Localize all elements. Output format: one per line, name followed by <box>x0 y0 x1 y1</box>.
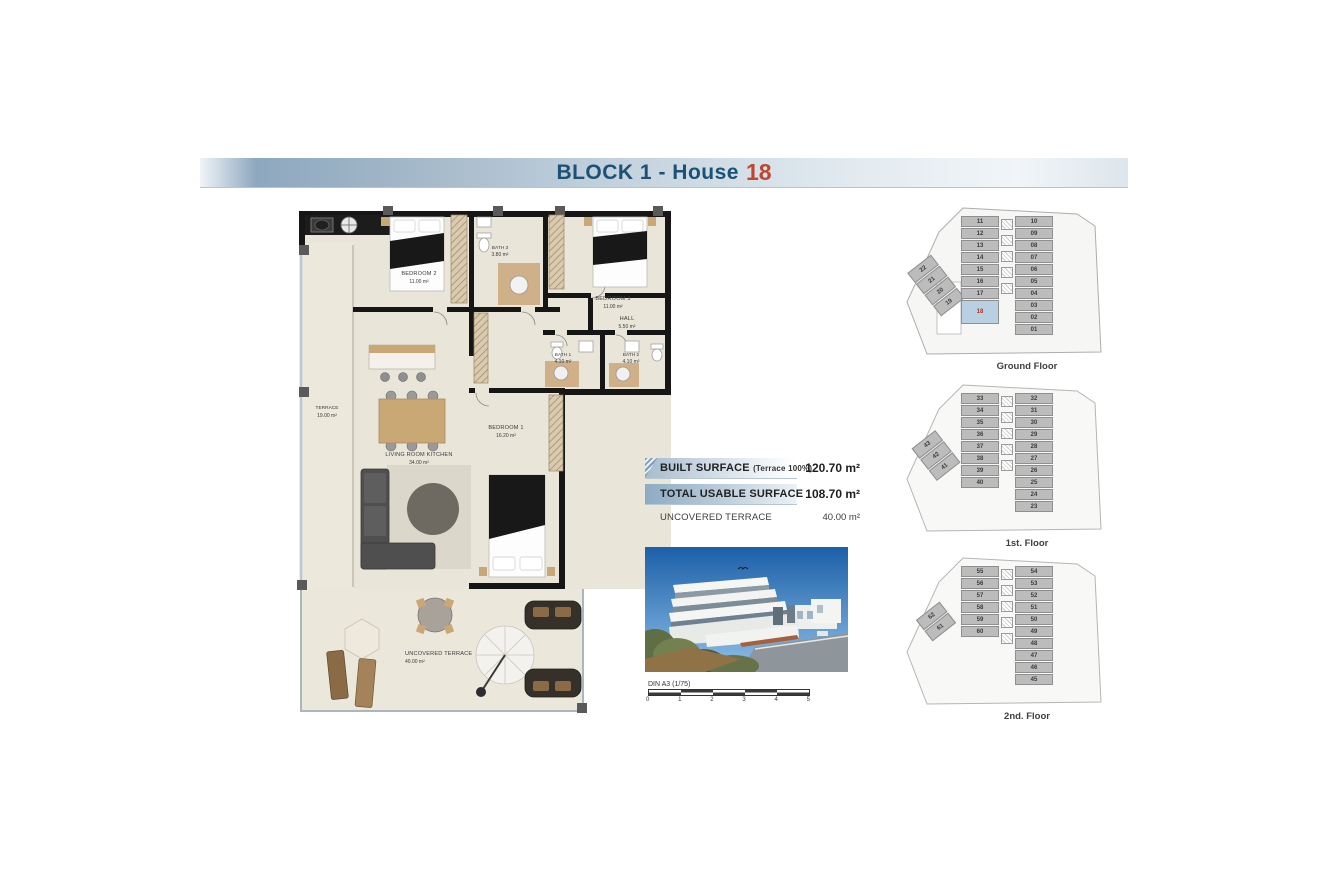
usable-surface-value: 108.70 m² <box>805 484 860 504</box>
unit-cell: 60 <box>961 626 999 637</box>
unit-cell: 01 <box>1015 324 1053 335</box>
right-units: 10090807060504030201 <box>1015 216 1053 335</box>
miniplan-first-floor: 434241 3334353637383940 3231302928272625… <box>905 383 1105 551</box>
unit-cell: 03 <box>1015 300 1053 311</box>
room-label-bedroom2: BEDROOM 2 <box>401 271 436 277</box>
living-area <box>361 465 471 569</box>
unit-cell: 57 <box>961 590 999 601</box>
unit-cell: 09 <box>1015 228 1053 239</box>
room-area-bath3: 3.80 m² <box>492 252 509 258</box>
scale-segments <box>648 689 810 696</box>
room-label-bath1: BATH 1 <box>555 352 572 358</box>
floor-label-ground: Ground Floor <box>949 361 1105 372</box>
unit-cell: 32 <box>1015 393 1053 404</box>
scale-tick: 1 <box>678 697 681 703</box>
unit-cell: 36 <box>961 429 999 440</box>
scale-bar: DIN A3 (1/75) 012345 <box>648 681 826 703</box>
unit-cell: 14 <box>961 252 999 263</box>
apartment-floor-plan: BEDROOM 2 11.00 m² BATH 3 3.80 m² BEDROO… <box>293 203 683 723</box>
unit-cell: 26 <box>1015 465 1053 476</box>
miniplan-second-floor: 6261 555657585960 54535251504948474645 2… <box>905 556 1105 724</box>
unit-cell: 45 <box>1015 674 1053 685</box>
unit-cell: 18 <box>961 300 999 324</box>
stool-icon <box>399 373 408 382</box>
room-area-bedroom2: 11.00 m² <box>409 279 429 285</box>
left-units: 555657585960 <box>961 566 999 685</box>
unit-cell: 08 <box>1015 240 1053 251</box>
room-area-hall: 5.50 m² <box>619 324 636 330</box>
uncovered-terrace-value: 40.00 m² <box>823 510 861 526</box>
usable-surface-row: TOTAL USABLE SURFACE 108.70 m² <box>645 484 860 504</box>
room-area-terrace: 19.00 m² <box>317 413 337 419</box>
stair-core <box>999 566 1015 685</box>
bed-bedroom1 <box>479 475 555 577</box>
room-area-bedroom1: 16.20 m² <box>496 433 516 439</box>
unit-cell: 02 <box>1015 312 1053 323</box>
scale-tick: 5 <box>807 697 810 703</box>
unit-cell: 05 <box>1015 276 1053 287</box>
scale-label: DIN A3 (1/75) <box>648 681 826 688</box>
unit-cell: 34 <box>961 405 999 416</box>
unit-cell: 40 <box>961 477 999 488</box>
unit-cell: 31 <box>1015 405 1053 416</box>
surface-table: BUILT SURFACE (Terrace 100%) 120.70 m² T… <box>645 458 860 532</box>
unit-cell: 24 <box>1015 489 1053 500</box>
unit-cell: 48 <box>1015 638 1053 649</box>
room-label-bedroom1: BEDROOM 1 <box>488 425 523 431</box>
scale-tick: 2 <box>710 697 713 703</box>
stool-icon <box>417 373 426 382</box>
brochure-page: BLOCK 1 - House 18 <box>0 0 1320 895</box>
room-area-living: 34.00 m² <box>409 460 429 466</box>
unit-cell: 59 <box>961 614 999 625</box>
left-units: 1112131415161718 <box>961 216 999 335</box>
room-label-bath3: BATH 3 <box>492 245 509 251</box>
miniplan-ground-floor: 22212019 1112131415161718 10090807060504… <box>905 206 1105 374</box>
room-label-living: LIVING ROOM KITCHEN <box>385 452 452 458</box>
unit-cell: 37 <box>961 441 999 452</box>
floor-label-second: 2nd. Floor <box>949 711 1105 722</box>
unit-cell: 35 <box>961 417 999 428</box>
right-units: 32313029282726252423 <box>1015 393 1053 512</box>
left-units: 3334353637383940 <box>961 393 999 512</box>
floor-label-first: 1st. Floor <box>949 538 1105 549</box>
unit-cell: 46 <box>1015 662 1053 673</box>
round-rug <box>407 483 459 535</box>
uncovered-terrace-label: UNCOVERED TERRACE <box>660 510 772 526</box>
unit-cell: 49 <box>1015 626 1053 637</box>
house-number: 18 <box>746 159 772 186</box>
unit-cell: 10 <box>1015 216 1053 227</box>
uncovered-terrace-row: UNCOVERED TERRACE 40.00 m² <box>645 510 860 526</box>
unit-cell: 53 <box>1015 578 1053 589</box>
unit-cell: 39 <box>961 465 999 476</box>
unit-cell: 29 <box>1015 429 1053 440</box>
room-label-hall: HALL <box>620 316 635 322</box>
unit-cell: 23 <box>1015 501 1053 512</box>
stair-core <box>999 216 1015 335</box>
page-title: BLOCK 1 - House <box>556 161 739 185</box>
unit-cell: 15 <box>961 264 999 275</box>
scale-tick: 0 <box>646 697 649 703</box>
scale-ticks: 012345 <box>646 697 810 703</box>
main-block: 3334353637383940 32313029282726252423 <box>961 393 1053 512</box>
unit-cell: 16 <box>961 276 999 287</box>
built-surface-label: BUILT SURFACE <box>660 462 750 474</box>
stair-core <box>999 393 1015 512</box>
right-units: 54535251504948474645 <box>1015 566 1053 685</box>
room-label-bedroom3: BEDROOM 3 <box>595 296 630 302</box>
room-label-terrace: TERRACE <box>316 405 339 411</box>
unit-cell: 13 <box>961 240 999 251</box>
room-area-bedroom3: 11.00 m² <box>603 304 623 310</box>
unit-cell: 12 <box>961 228 999 239</box>
built-surface-value: 120.70 m² <box>805 458 860 478</box>
sofa-chaise <box>361 543 435 569</box>
main-block: 1112131415161718 10090807060504030201 <box>961 216 1053 335</box>
unit-cell: 04 <box>1015 288 1053 299</box>
built-surface-row: BUILT SURFACE (Terrace 100%) 120.70 m² <box>645 458 860 478</box>
unit-cell: 25 <box>1015 477 1053 488</box>
unit-cell: 51 <box>1015 602 1053 613</box>
dining-table <box>379 391 445 451</box>
unit-cell: 50 <box>1015 614 1053 625</box>
unit-cell: 06 <box>1015 264 1053 275</box>
unit-cell: 33 <box>961 393 999 404</box>
scale-tick: 3 <box>742 697 745 703</box>
unit-cell: 07 <box>1015 252 1053 263</box>
unit-cell: 47 <box>1015 650 1053 661</box>
building-photo <box>645 547 848 672</box>
room-area-bath2: 4.10 m² <box>623 359 640 365</box>
room-area-uncovered-terrace: 40.00 m² <box>405 659 425 665</box>
unit-cell: 55 <box>961 566 999 577</box>
unit-cell: 28 <box>1015 441 1053 452</box>
room-label-uncovered-terrace: UNCOVERED TERRACE <box>405 651 472 657</box>
unit-cell: 27 <box>1015 453 1053 464</box>
bed-bedroom3 <box>584 217 656 287</box>
unit-cell: 38 <box>961 453 999 464</box>
built-surface-note: (Terrace 100%) <box>753 464 812 473</box>
room-label-bath2: BATH 2 <box>623 352 640 358</box>
title-bar: BLOCK 1 - House 18 <box>200 158 1128 188</box>
unit-cell: 11 <box>961 216 999 227</box>
unit-cell: 52 <box>1015 590 1053 601</box>
stool-icon <box>381 373 390 382</box>
usable-surface-label: TOTAL USABLE SURFACE <box>660 484 803 504</box>
unit-cell: 54 <box>1015 566 1053 577</box>
room-area-bath1: 4.10 m² <box>555 359 572 365</box>
scale-tick: 4 <box>775 697 778 703</box>
unit-cell: 56 <box>961 578 999 589</box>
unit-cell: 30 <box>1015 417 1053 428</box>
unit-cell: 17 <box>961 288 999 299</box>
unit-cell: 58 <box>961 602 999 613</box>
main-block: 555657585960 54535251504948474645 <box>961 566 1053 685</box>
